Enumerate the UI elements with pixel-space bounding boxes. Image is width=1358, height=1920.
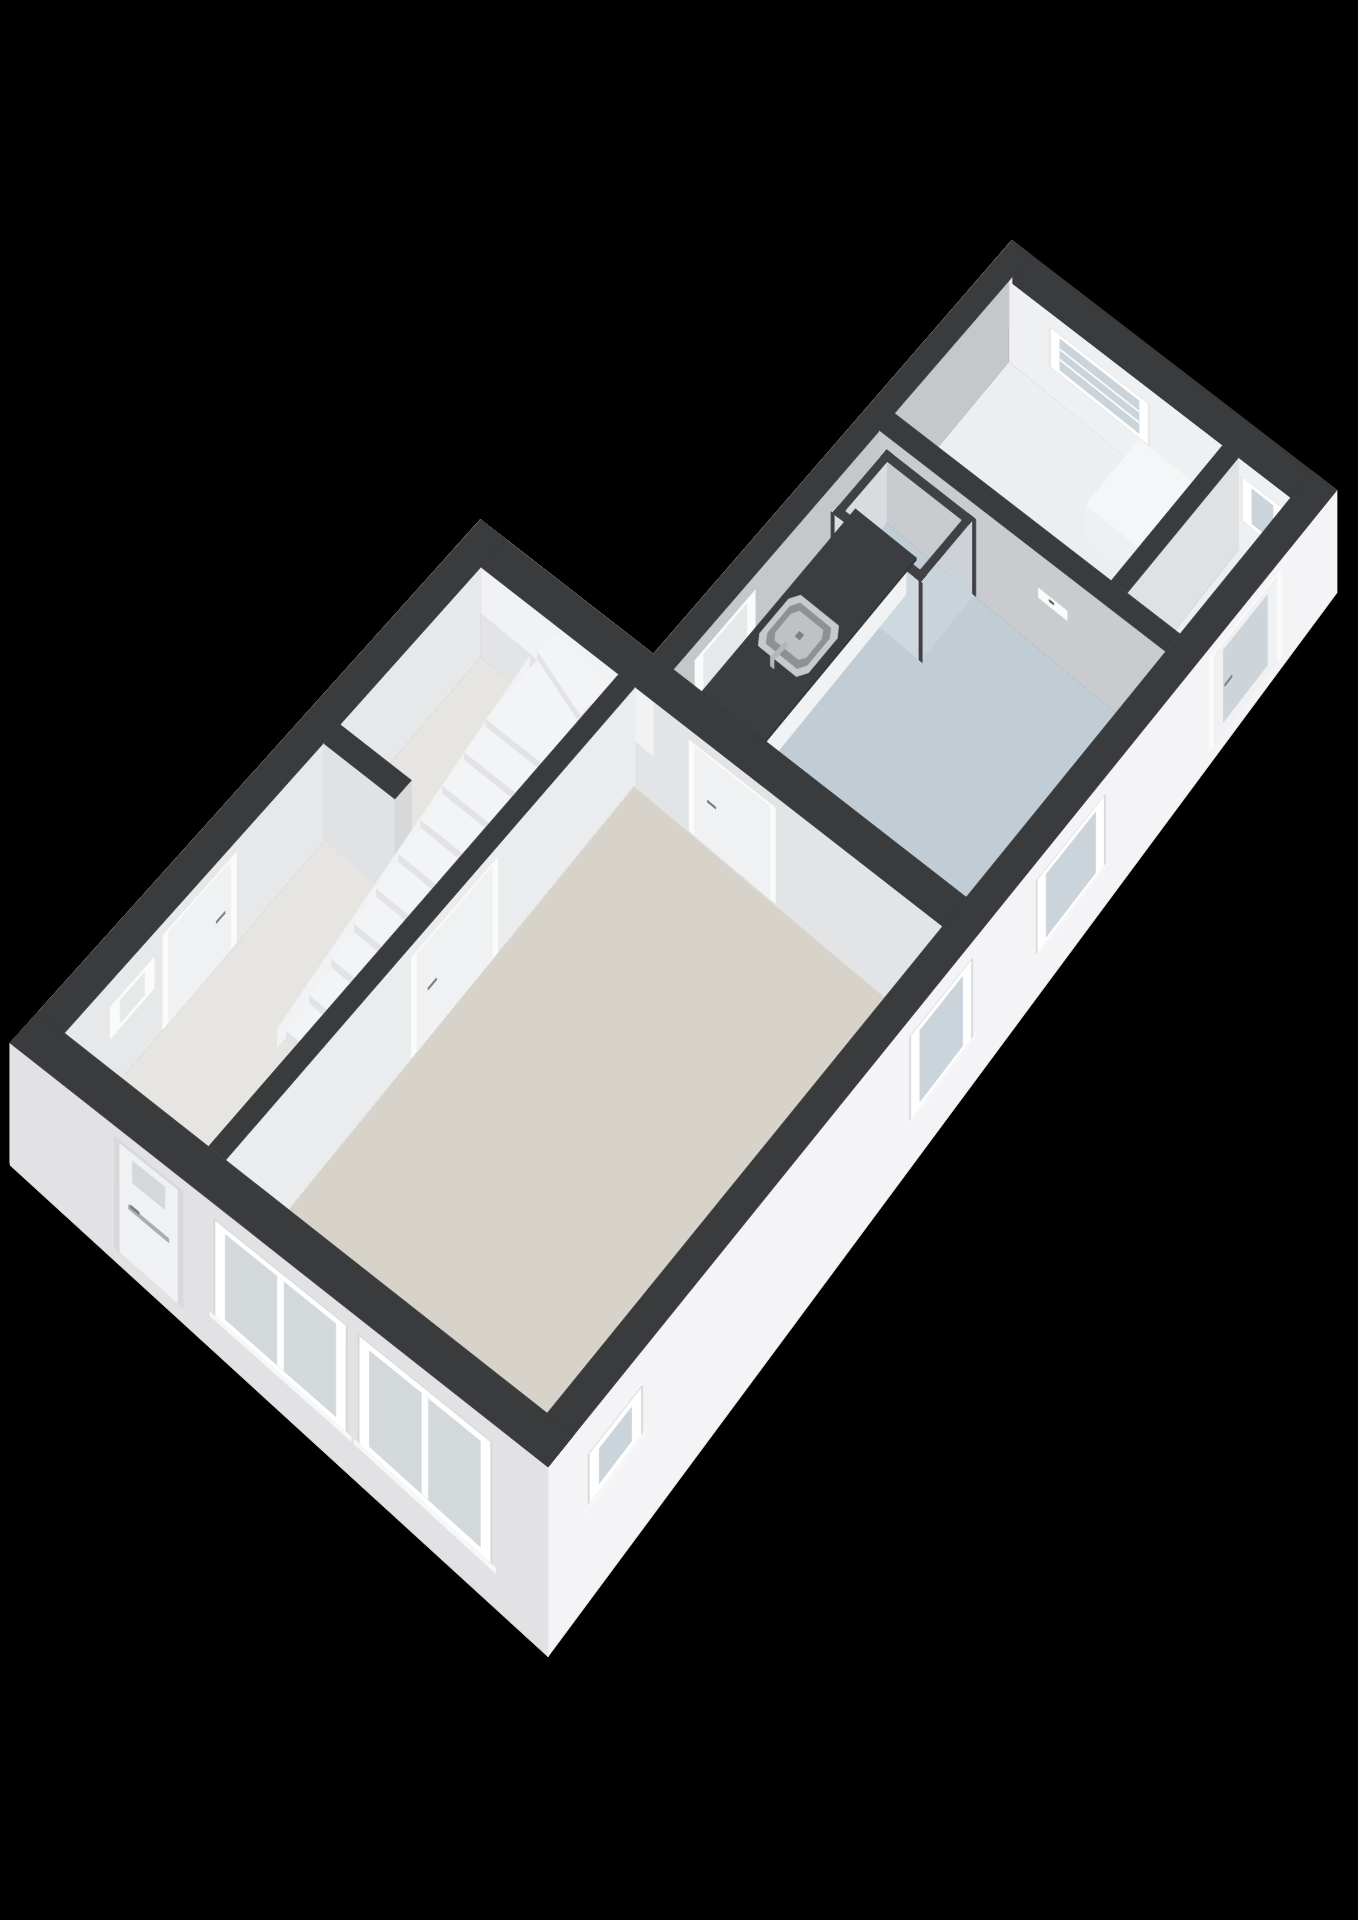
floorplan-3d-render bbox=[0, 0, 1358, 1920]
floorplan-scene bbox=[0, 0, 1358, 1920]
